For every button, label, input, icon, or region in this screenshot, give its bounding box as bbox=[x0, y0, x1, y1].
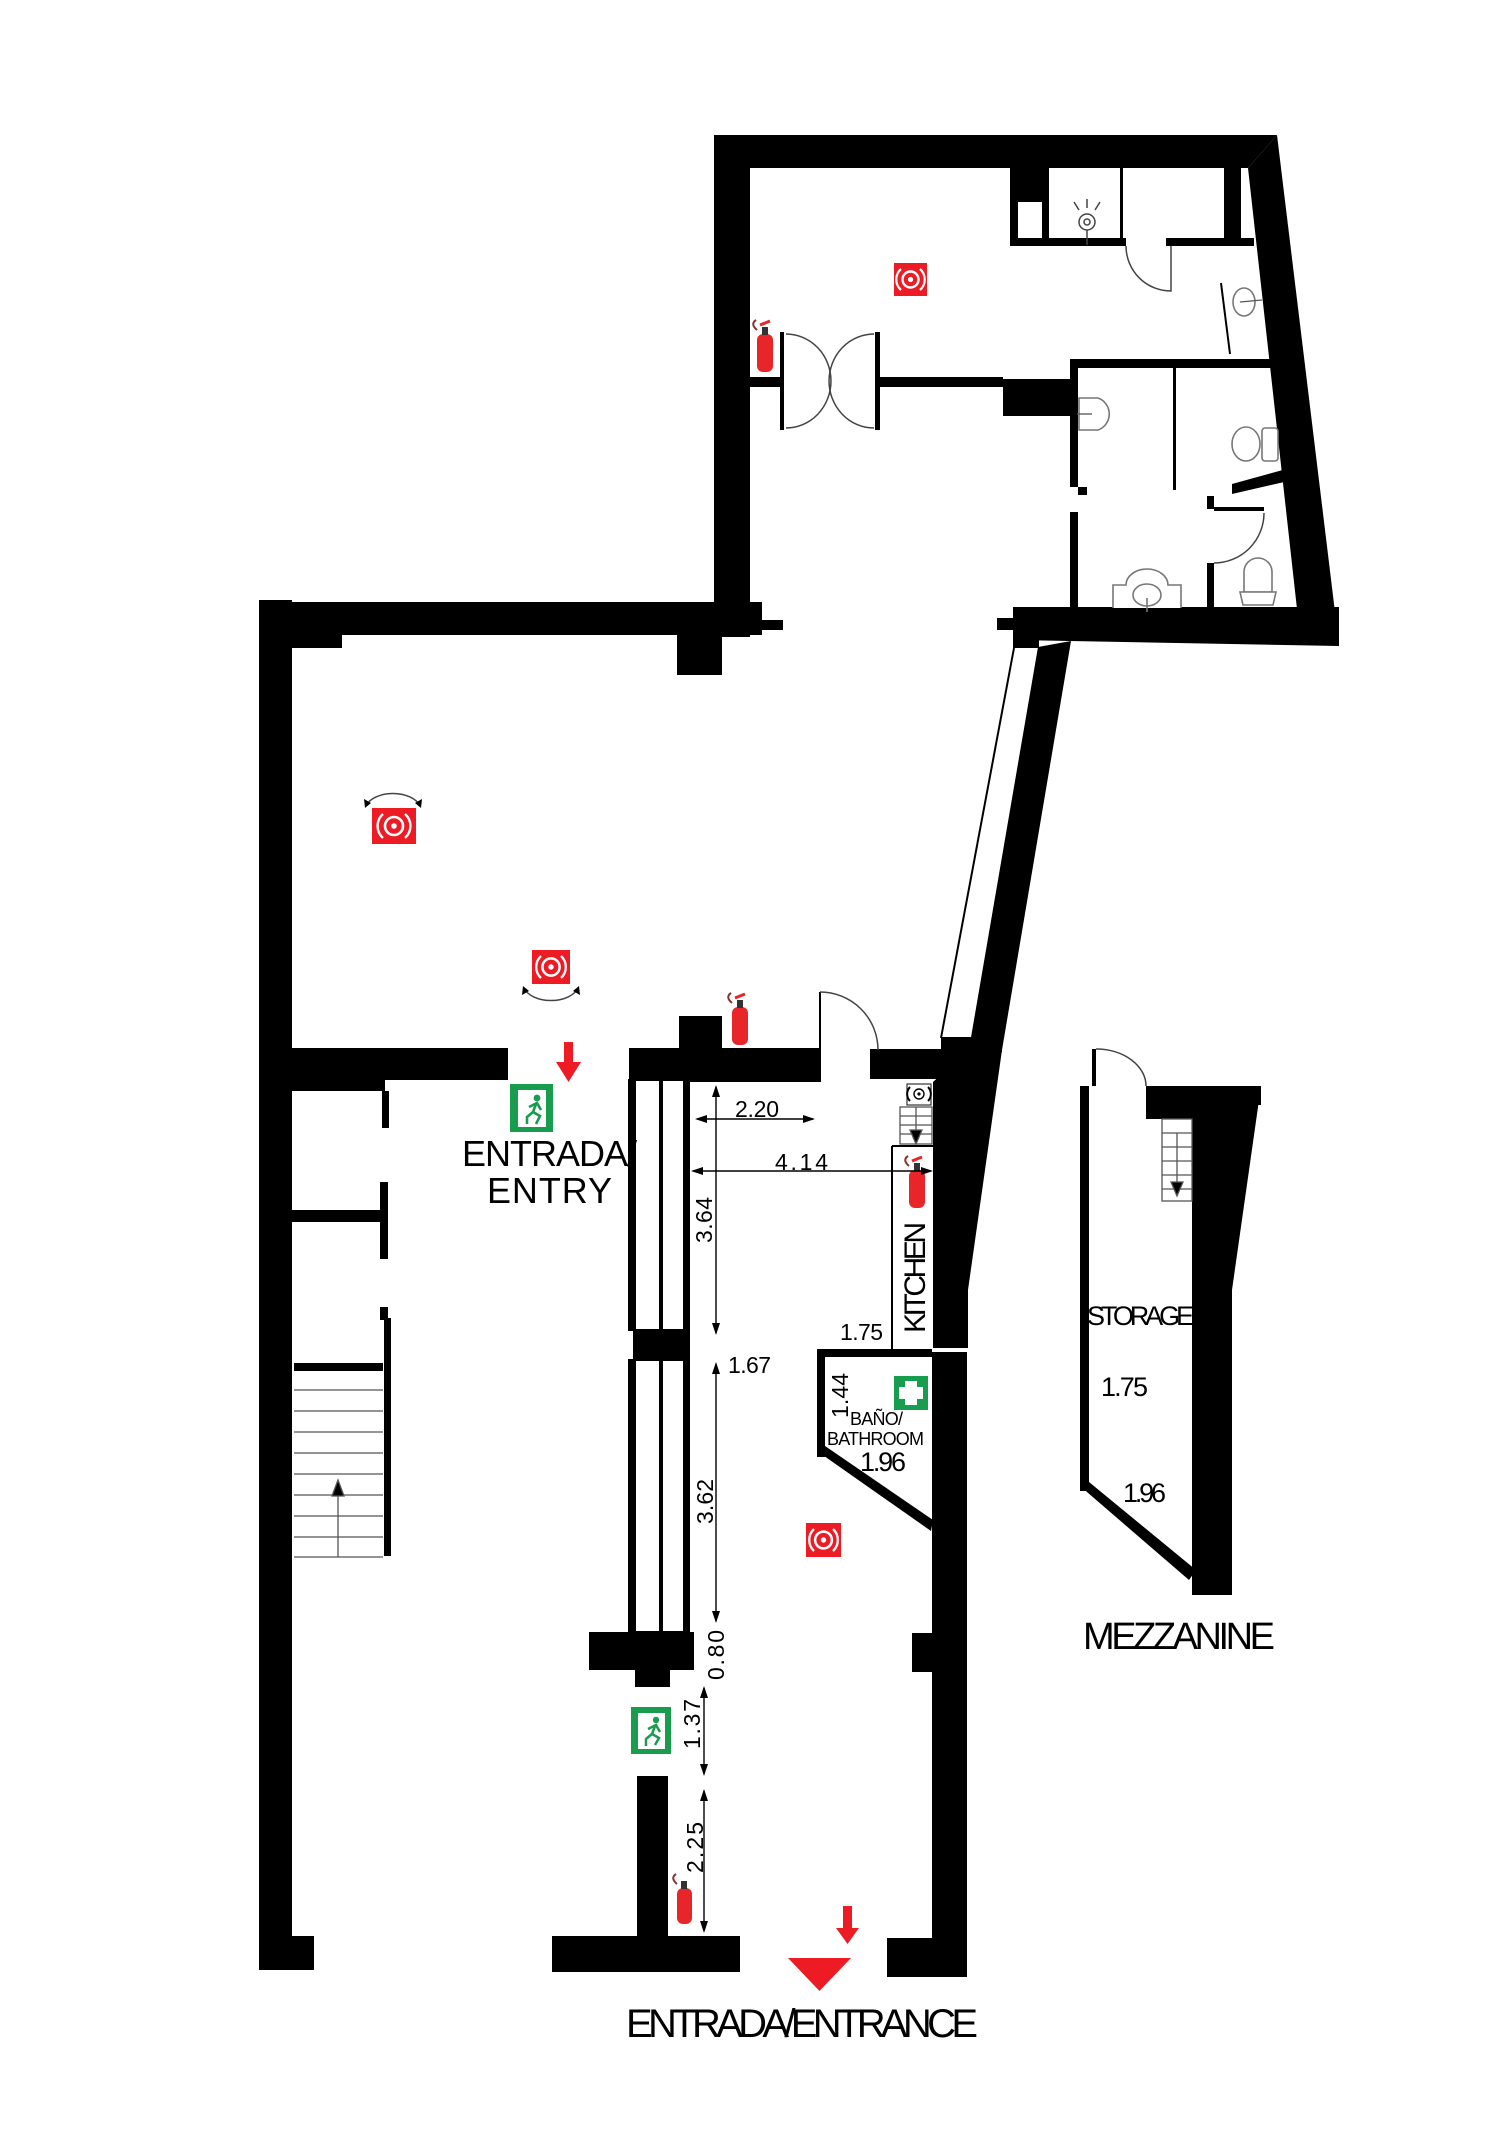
svg-text:BATHROOM: BATHROOM bbox=[827, 1429, 924, 1449]
svg-text:MEZZANINE: MEZZANINE bbox=[1083, 1616, 1275, 1658]
svg-text:BAÑO/: BAÑO/ bbox=[850, 1408, 903, 1429]
svg-text:1.75: 1.75 bbox=[1101, 1372, 1148, 1402]
svg-text:ENTRADA/ENTRANCE: ENTRADA/ENTRANCE bbox=[626, 2002, 978, 2046]
svg-text:1.96: 1.96 bbox=[860, 1447, 906, 1477]
svg-text:ENTRADA/: ENTRADA/ bbox=[462, 1133, 637, 1174]
svg-text:4.14: 4.14 bbox=[775, 1149, 828, 1175]
svg-text:ENTRY: ENTRY bbox=[487, 1170, 612, 1211]
svg-text:1.67: 1.67 bbox=[728, 1352, 771, 1378]
svg-text:3.64: 3.64 bbox=[691, 1197, 717, 1243]
svg-text:STORAGE: STORAGE bbox=[1087, 1301, 1194, 1331]
svg-text:1.37: 1.37 bbox=[679, 1699, 705, 1749]
svg-text:2.25: 2.25 bbox=[682, 1822, 708, 1873]
svg-text:1.96: 1.96 bbox=[1123, 1478, 1166, 1508]
svg-text:1.75: 1.75 bbox=[840, 1319, 883, 1345]
svg-text:KITCHEN: KITCHEN bbox=[899, 1222, 932, 1333]
svg-text:3.62: 3.62 bbox=[692, 1479, 718, 1524]
svg-text:0.80: 0.80 bbox=[703, 1630, 729, 1680]
svg-text:2.20: 2.20 bbox=[735, 1096, 779, 1122]
